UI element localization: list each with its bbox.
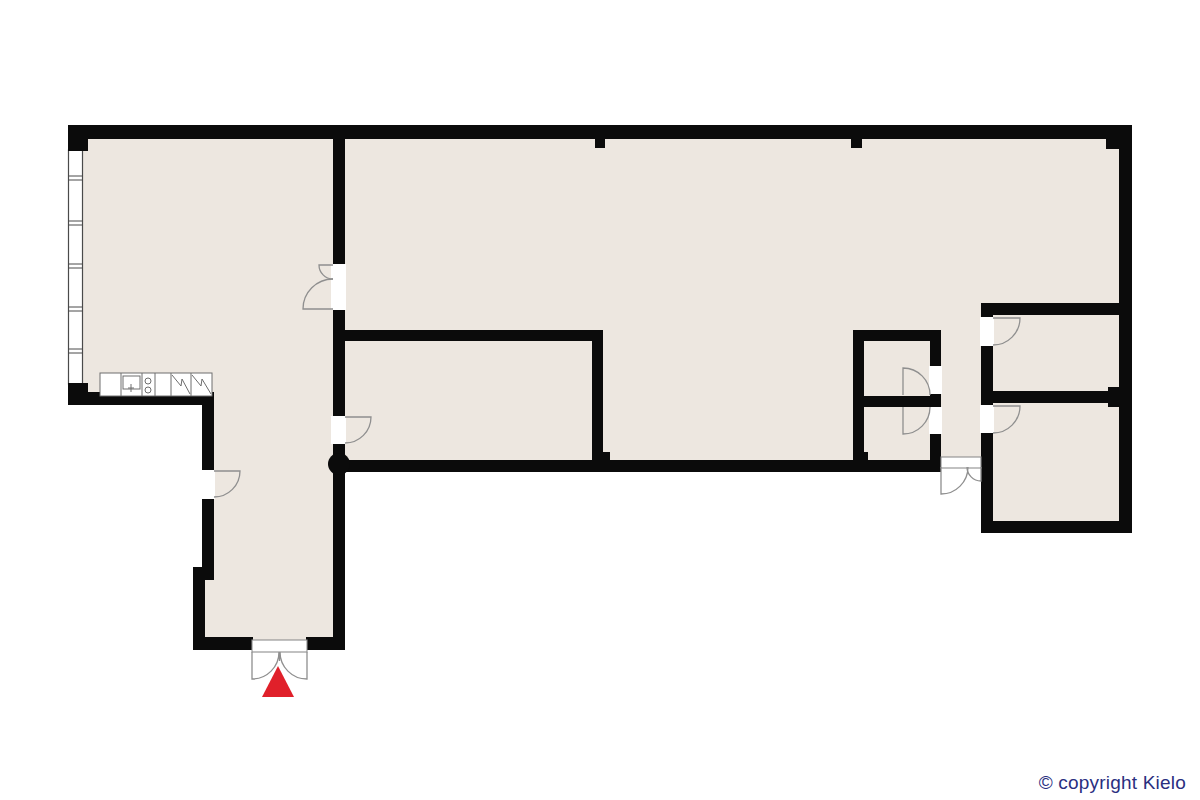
wall-rightrooms-divider — [993, 391, 1122, 403]
wall-rightrooms-left-c — [981, 433, 993, 522]
wall-topleft-stub — [68, 139, 88, 151]
wall-smallrooms-top — [853, 330, 941, 341]
wall-top — [68, 125, 1132, 139]
door-swing-entrance-right — [280, 652, 307, 679]
door-opening-main-double — [331, 264, 346, 310]
wall-middleroom-right — [592, 341, 603, 468]
wall-top-stub-1 — [595, 139, 605, 148]
wall-smallrooms-divider — [853, 396, 941, 407]
door-opening-corridor — [200, 470, 215, 499]
wall-rightrooms-bottom — [981, 521, 1132, 533]
wall-smallrooms-right-a — [930, 341, 941, 366]
kitchen-counter — [100, 373, 212, 396]
copyright-text: © copyright Kielo — [1039, 772, 1186, 794]
door-opening-upper-small — [929, 366, 942, 394]
wall-smallrooms-stub — [853, 452, 868, 462]
wall-middleroom-top — [339, 330, 603, 341]
wall-rightrooms-left-b — [981, 346, 993, 405]
door-opening-topright — [980, 317, 994, 346]
door-opening-lower-small — [929, 407, 942, 434]
door-opening-bottomright — [980, 405, 994, 433]
floor-plan-page: © copyright Kielo — [0, 0, 1200, 800]
wall-main-vertical-b — [333, 310, 345, 416]
wall-hall-bottom — [333, 460, 941, 472]
floor-plan-svg — [0, 0, 1200, 800]
door-swing-side-exit-small — [967, 467, 981, 481]
column — [328, 453, 350, 475]
door-opening-middleroom — [331, 416, 346, 444]
entrance-arrow — [262, 666, 294, 697]
threshold-entrance — [252, 640, 307, 652]
wall-smallrooms-right-c — [930, 434, 941, 466]
wall-bottomleft-stub — [68, 383, 88, 393]
threshold-side-exit — [941, 457, 981, 468]
door-swing-side-exit-large — [941, 467, 968, 494]
wall-topright-notch — [1106, 139, 1119, 149]
wall-entrance-left — [193, 637, 253, 650]
wall-right — [1119, 125, 1132, 533]
wall-main-vertical-a — [333, 139, 345, 264]
wall-top-stub-2 — [851, 139, 862, 148]
wall-rightrooms-top — [981, 303, 1132, 315]
